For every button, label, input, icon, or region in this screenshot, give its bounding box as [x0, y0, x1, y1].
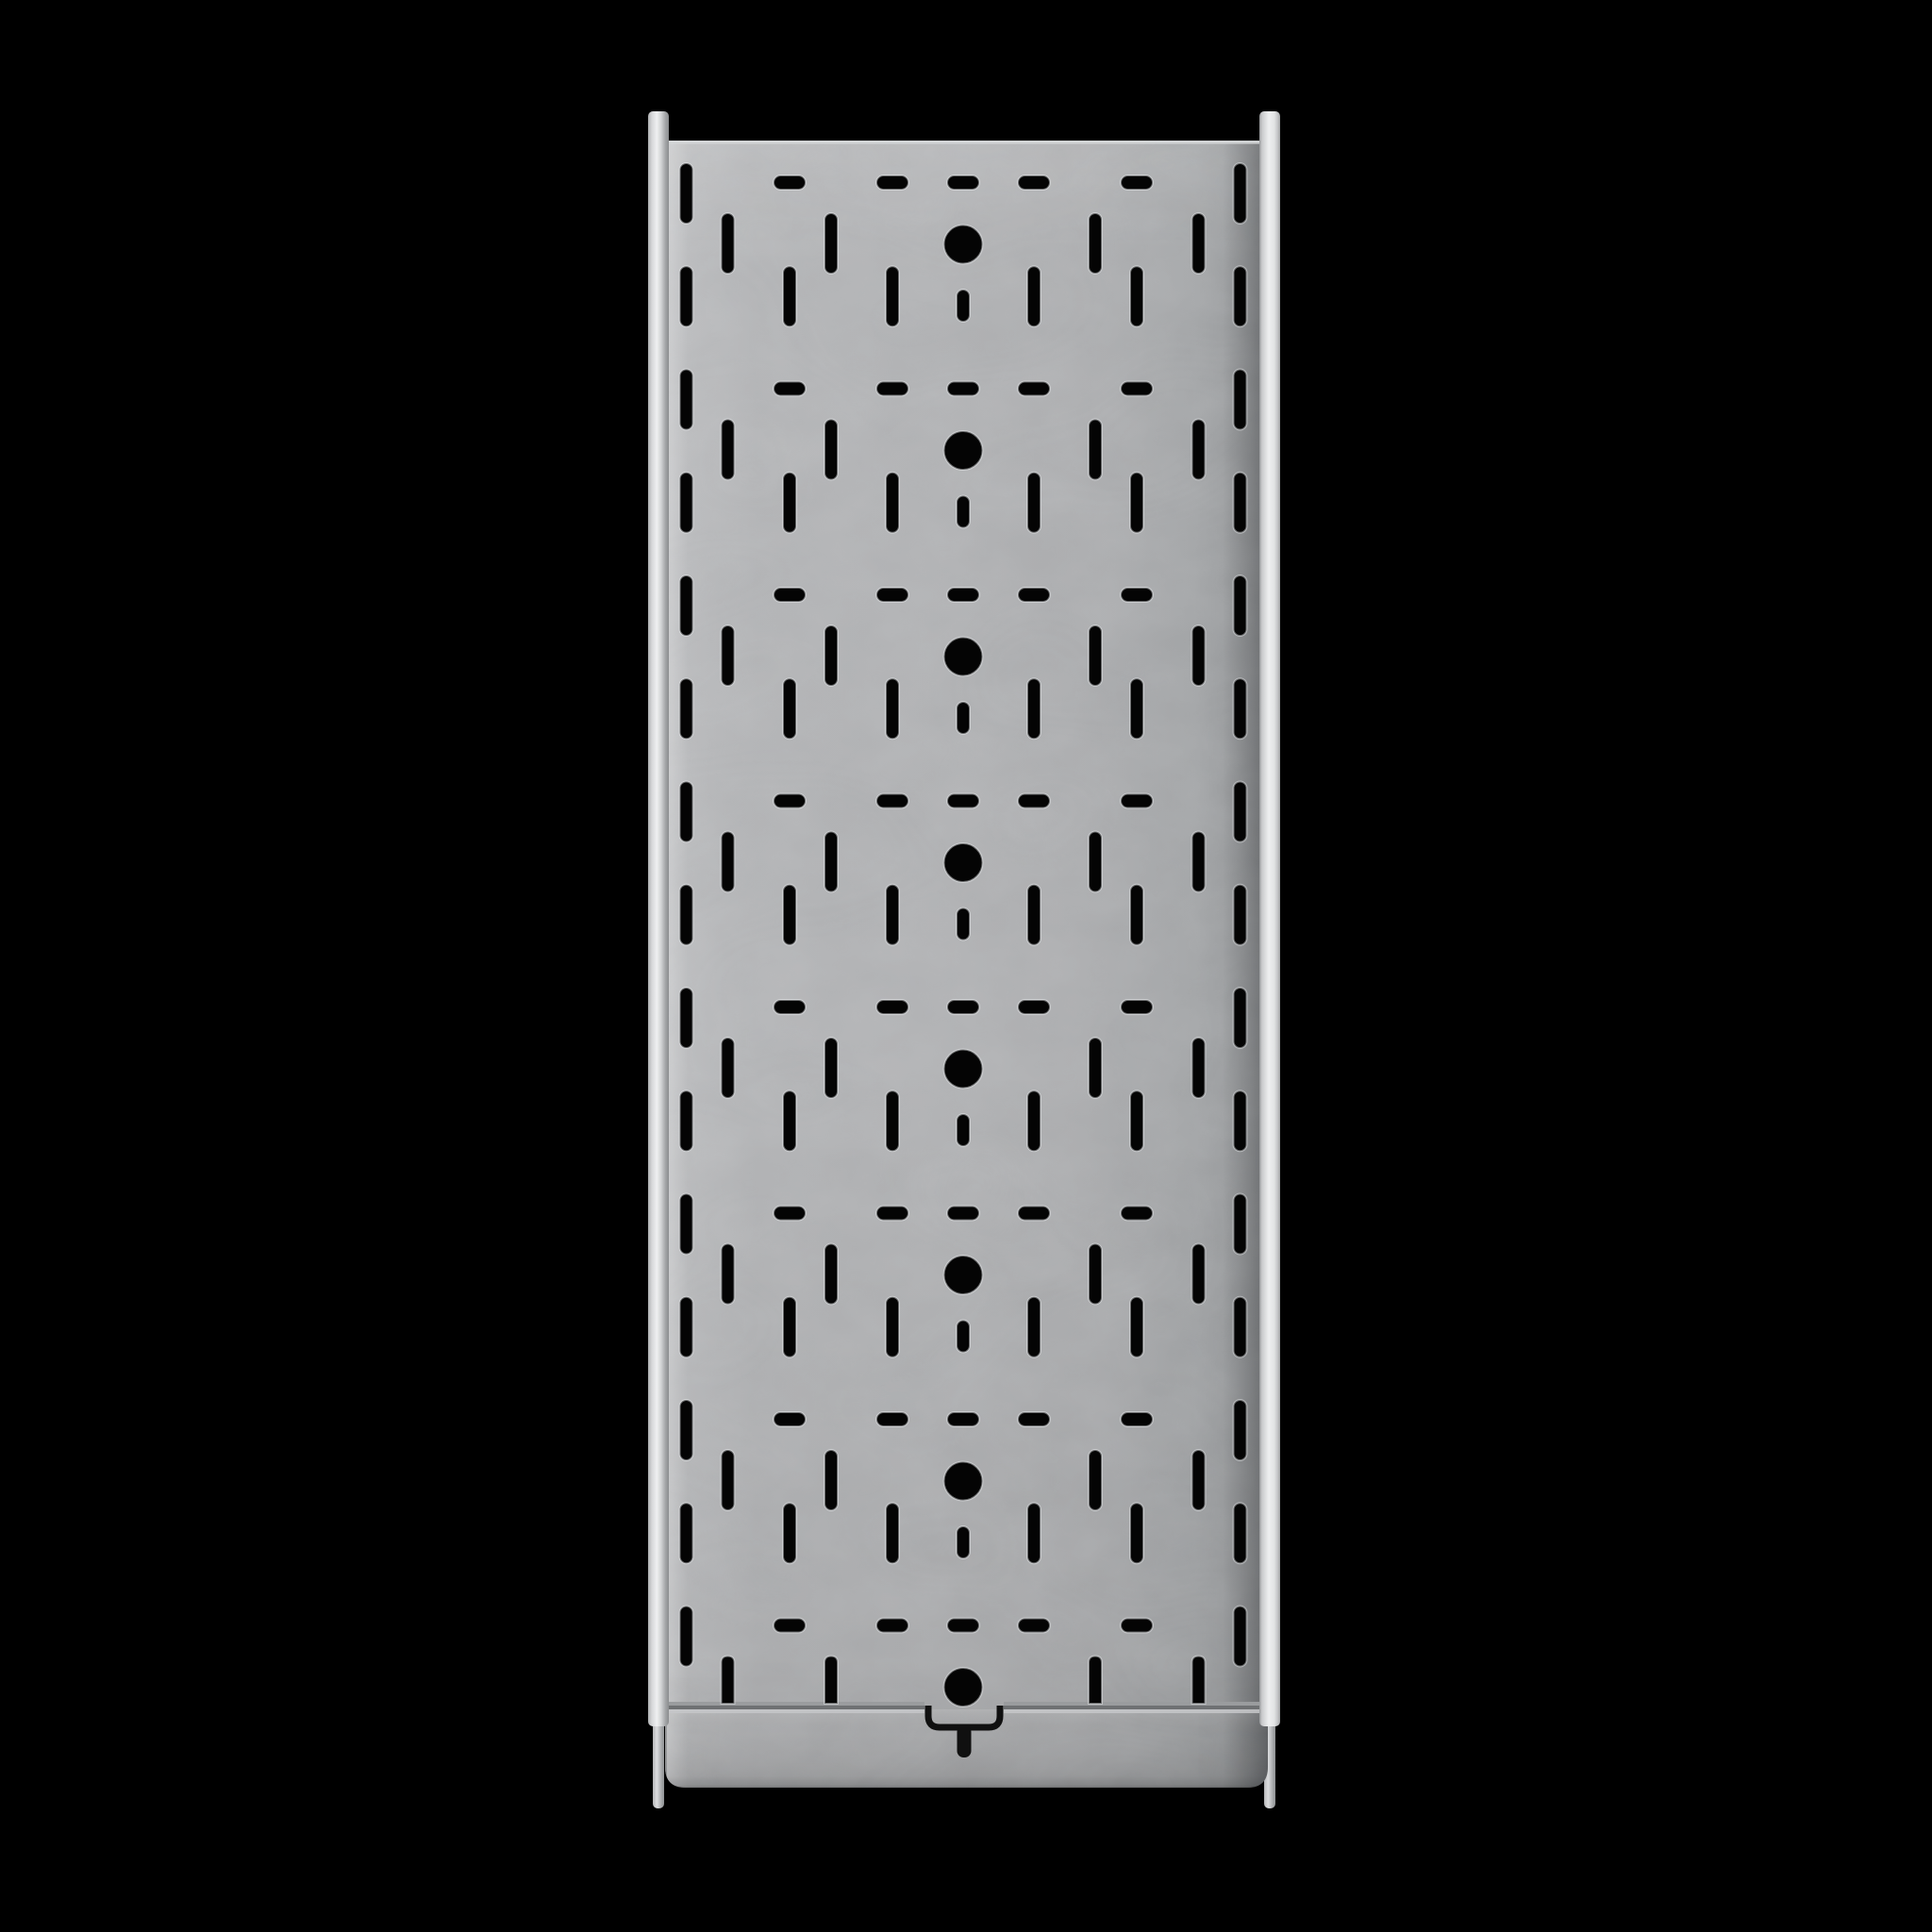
hole-small-slot [957, 908, 970, 941]
hole-slot [1234, 1400, 1247, 1460]
hole-slot [824, 213, 838, 274]
hole-slot [680, 782, 693, 842]
hole-slot [680, 1503, 693, 1563]
hole-slot [680, 163, 693, 224]
hole-slot [680, 1194, 693, 1255]
hole-dash [947, 1619, 979, 1633]
hole-dash [947, 588, 979, 602]
hole-slot [1234, 1607, 1247, 1667]
hole-dash [1018, 382, 1050, 396]
hole-slot-truncated [722, 1657, 735, 1705]
hole-circle [944, 843, 983, 882]
hole-dash [947, 794, 979, 808]
hole-small-slot [957, 1321, 970, 1353]
hole-slot [783, 678, 796, 739]
hole-dash [876, 1000, 908, 1014]
hole-slot [680, 678, 693, 739]
hole-slot [1130, 1297, 1143, 1357]
hole-slot [1027, 266, 1041, 326]
hole-circle [944, 1256, 983, 1294]
hole-slot [1027, 1503, 1041, 1563]
hole-slot-truncated [1192, 1657, 1206, 1705]
cable-tray-photo [0, 0, 1932, 1932]
hole-slot-truncated [824, 1657, 838, 1705]
hole-dash [1121, 588, 1153, 602]
hole-slot [886, 1297, 899, 1357]
hole-slot [1192, 832, 1206, 892]
hole-slot [1130, 473, 1143, 533]
hole-slot [783, 1091, 796, 1151]
hole-dash [774, 1412, 806, 1426]
hole-slot [824, 1038, 838, 1098]
hole-dash [774, 382, 806, 396]
hole-slot [1130, 1503, 1143, 1563]
hole-slot [1027, 1091, 1041, 1151]
hole-dash [876, 794, 908, 808]
hole-slot [1234, 885, 1247, 945]
hole-small-slot [957, 496, 970, 528]
hole-slot [680, 575, 693, 636]
hole-slot [824, 420, 838, 480]
seam-light-left [665, 1709, 924, 1713]
hole-slot-truncated [1089, 1657, 1102, 1705]
hole-dash [876, 588, 908, 602]
hole-slot [680, 1607, 693, 1667]
hole-dash [1121, 175, 1153, 190]
hole-slot [722, 420, 735, 480]
hole-slot [1192, 213, 1206, 274]
hole-dash [876, 382, 908, 396]
hole-slot [824, 1450, 838, 1510]
hole-slot [1130, 885, 1143, 945]
hole-dash [774, 1000, 806, 1014]
hole-dash [1018, 1619, 1050, 1633]
hole-slot [1234, 1503, 1247, 1563]
hole-slot [1234, 266, 1247, 326]
hole-slot [1234, 678, 1247, 739]
hole-dash [1121, 1207, 1153, 1221]
hole-slot [1089, 213, 1102, 274]
hole-dash [947, 382, 979, 396]
hole-slot [1192, 625, 1206, 686]
hole-slot [783, 1503, 796, 1563]
hole-slot [1130, 266, 1143, 326]
hole-slot [680, 266, 693, 326]
hole-slot [1192, 1244, 1206, 1305]
right-rail [1259, 111, 1280, 1726]
hole-slot [680, 885, 693, 945]
hole-dash [1018, 794, 1050, 808]
left-rail [648, 111, 669, 1726]
hole-slot [680, 473, 693, 533]
hole-slot [680, 1297, 693, 1357]
hole-slot [1192, 420, 1206, 480]
seam-upper-shade-left [665, 1702, 924, 1706]
hole-slot [783, 266, 796, 326]
hole-slot [783, 885, 796, 945]
hole-dash [1018, 1412, 1050, 1426]
hole-dash [876, 175, 908, 190]
hole-slot [1089, 420, 1102, 480]
hole-dash [876, 1207, 908, 1221]
seam-dark-right [1004, 1706, 1268, 1709]
hole-dash [1121, 794, 1153, 808]
hole-slot [783, 1297, 796, 1357]
seam-upper-shade-right [1004, 1702, 1268, 1706]
hole-slot [1027, 885, 1041, 945]
hole-slot [722, 1244, 735, 1305]
hole-dash [1121, 1619, 1153, 1633]
hole-circle [944, 431, 983, 470]
hole-slot [1192, 1450, 1206, 1510]
latch-stem [958, 1725, 972, 1757]
hole-slot [886, 1503, 899, 1563]
hole-slot [1089, 625, 1102, 686]
hole-dash [1121, 1000, 1153, 1014]
product-photo [0, 0, 1932, 1932]
hole-dash [947, 1000, 979, 1014]
hole-slot [886, 266, 899, 326]
hole-small-slot [957, 702, 970, 734]
seam-light-right [1004, 1709, 1268, 1713]
hole-slot [1027, 473, 1041, 533]
hole-slot [1234, 1297, 1247, 1357]
hole-slot [722, 213, 735, 274]
hole-dash [774, 794, 806, 808]
hole-dash [774, 1207, 806, 1221]
hole-slot [783, 473, 796, 533]
hole-slot [886, 1091, 899, 1151]
hole-slot [824, 1244, 838, 1305]
hole-dash [1018, 175, 1050, 190]
hole-slot [1192, 1038, 1206, 1098]
hole-dash [876, 1412, 908, 1426]
hole-slot [1089, 1450, 1102, 1510]
hole-slot [886, 885, 899, 945]
hole-small-slot [957, 1526, 970, 1558]
hole-dash [947, 175, 979, 190]
hole-slot [1234, 163, 1247, 224]
hole-slot [1130, 678, 1143, 739]
hole-circle [944, 1462, 983, 1501]
hole-slot [886, 473, 899, 533]
hole-slot [1234, 473, 1247, 533]
hole-slot [680, 1091, 693, 1151]
hole-dash [1018, 588, 1050, 602]
hole-slot [680, 370, 693, 430]
hole-slot [1234, 782, 1247, 842]
hole-dash [1121, 1412, 1153, 1426]
hole-slot [680, 988, 693, 1048]
hole-slot [1234, 1194, 1247, 1255]
hole-slot [1089, 1244, 1102, 1305]
hole-slot [722, 625, 735, 686]
hole-dash [1018, 1000, 1050, 1014]
hole-dash [876, 1619, 908, 1633]
hole-dash [774, 1619, 806, 1633]
hole-circle [944, 1050, 983, 1089]
hole-slot [1234, 1091, 1247, 1151]
hole-slot [1027, 678, 1041, 739]
hole-circle [944, 1668, 983, 1707]
hole-circle [944, 225, 983, 264]
panel-top-edge-highlight [665, 141, 1268, 144]
cable-tray [648, 111, 1280, 1808]
hole-slot [722, 832, 735, 892]
hole-small-slot [957, 290, 970, 322]
hole-slot [886, 678, 899, 739]
hole-slot [722, 1038, 735, 1098]
hole-slot [1234, 370, 1247, 430]
hole-slot [1130, 1091, 1143, 1151]
hole-dash [947, 1412, 979, 1426]
hole-slot [1234, 988, 1247, 1048]
hole-dash [774, 588, 806, 602]
hole-dash [1121, 382, 1153, 396]
hole-dash [947, 1207, 979, 1221]
hole-small-slot [957, 1114, 970, 1146]
hole-slot [1027, 1297, 1041, 1357]
hole-slot [1089, 1038, 1102, 1098]
hole-slot [824, 625, 838, 686]
hole-dash [1018, 1207, 1050, 1221]
hole-slot [1234, 575, 1247, 636]
hole-slot [680, 1400, 693, 1460]
hole-dash [774, 175, 806, 190]
hole-slot [1089, 832, 1102, 892]
hole-slot [824, 832, 838, 892]
hole-circle [944, 638, 983, 676]
seam-dark-left [665, 1706, 924, 1709]
hole-slot [722, 1450, 735, 1510]
left-rail-leg [653, 1719, 664, 1808]
